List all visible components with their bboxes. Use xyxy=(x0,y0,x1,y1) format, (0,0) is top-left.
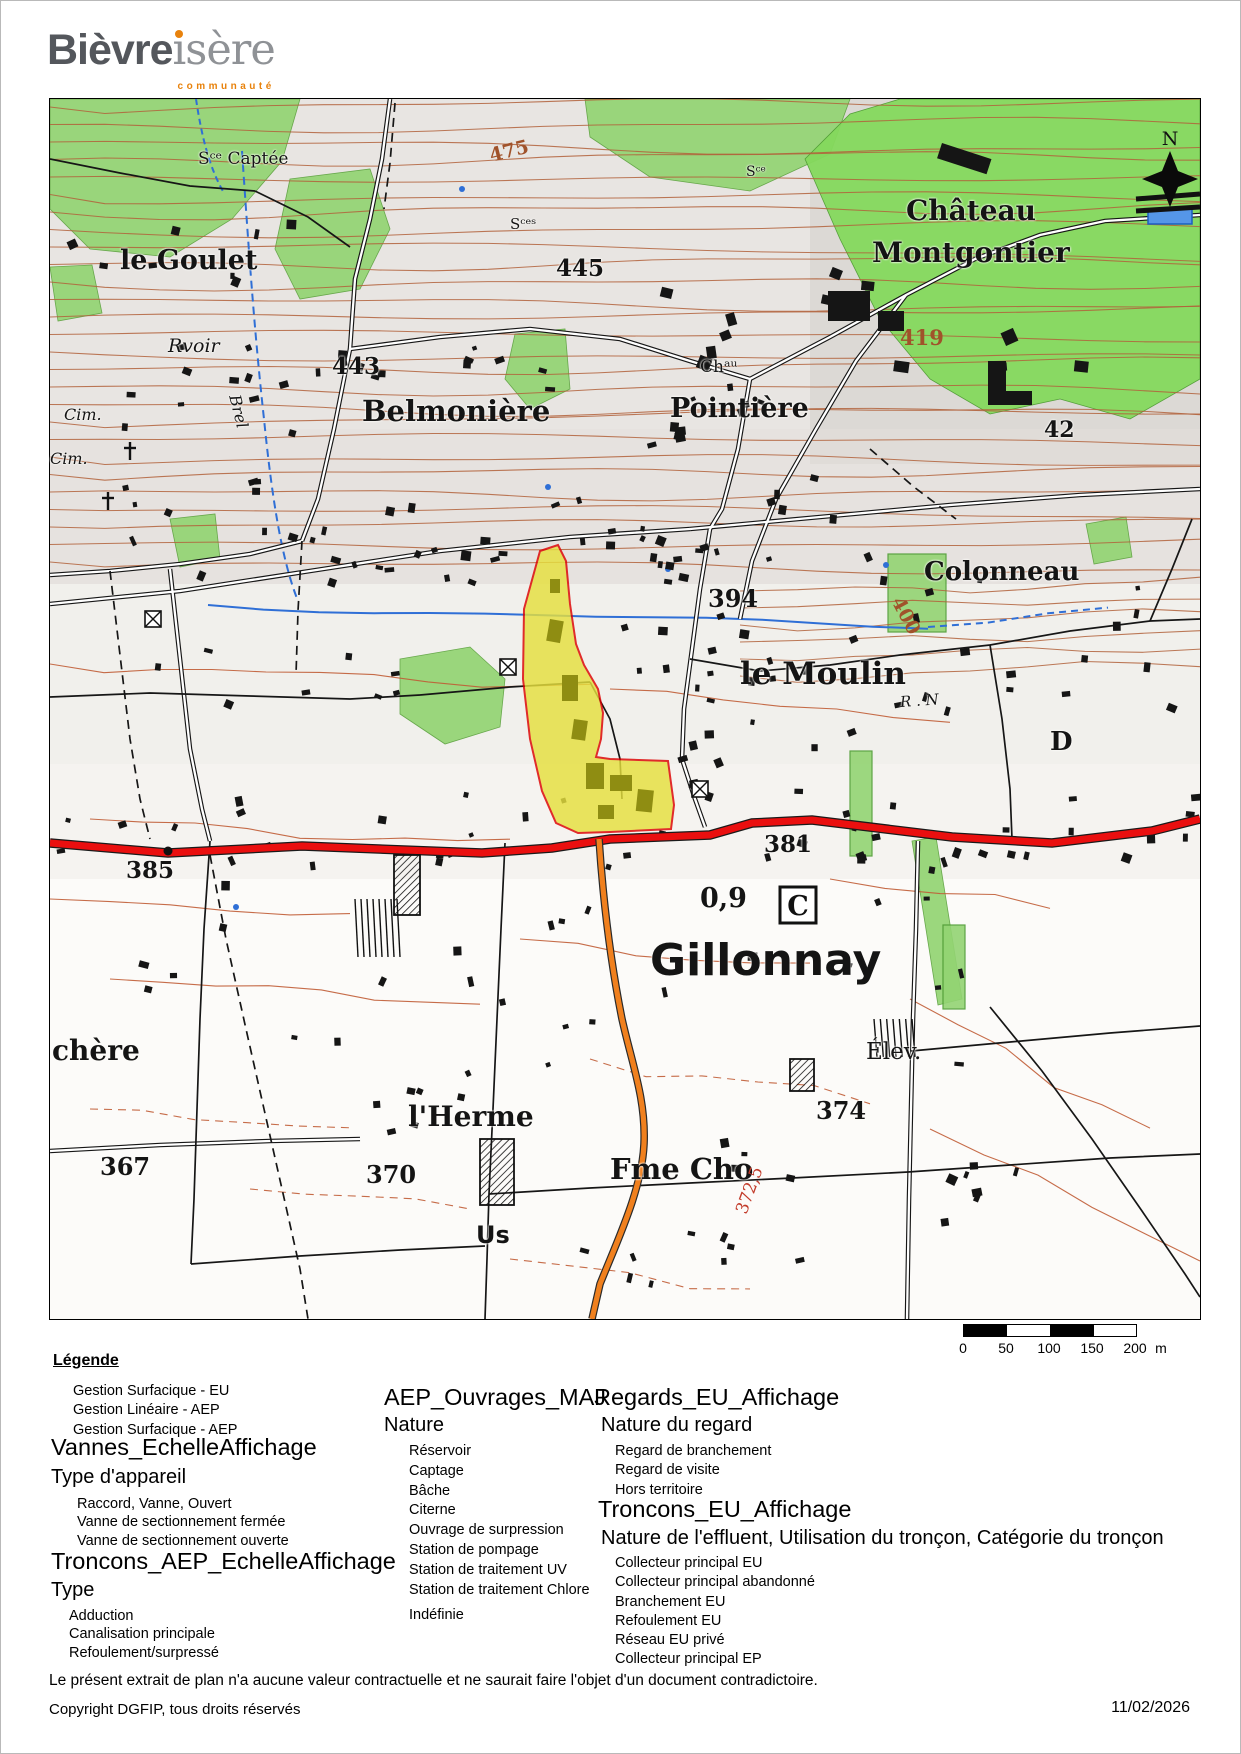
legend-ouvrages-items: RéservoirCaptageBâcheCiterneOuvrage de s… xyxy=(409,1442,590,1600)
legend-item: Gestion Linéaire - AEP xyxy=(73,1401,237,1420)
legend-surface-items: Gestion Surfacique - EUGestion Linéaire … xyxy=(73,1382,237,1440)
legend-item: Captage xyxy=(409,1462,590,1482)
map-canvas: C N xyxy=(50,99,1200,1319)
legend-troncons-aep-items: AdductionCanalisation principaleRefoulem… xyxy=(69,1607,219,1662)
copyright-text: Copyright DGFIP, tous droits réservés xyxy=(49,1701,300,1718)
logo-i-orange-dot-icon: ı xyxy=(172,25,185,75)
legend-item: Regard de branchement xyxy=(615,1442,771,1461)
legend-subheading-nature: Nature xyxy=(384,1414,444,1437)
legend-item: Collecteur principal EU xyxy=(615,1554,815,1573)
legend-item: Ouvrage de surpression xyxy=(409,1521,590,1541)
legend-item: Regard de visite xyxy=(615,1461,771,1480)
logo-tagline: communauté xyxy=(178,81,275,92)
legend-item: Collecteur principal abandonné xyxy=(615,1573,815,1592)
legend-item: Refoulement EU xyxy=(615,1612,815,1631)
legend-subheading-type-appareil: Type d'appareil xyxy=(51,1466,186,1489)
legend-item: Station de traitement UV xyxy=(409,1561,590,1581)
legend-title: Légende xyxy=(53,1352,119,1370)
legend-item: Gestion Surfacique - EU xyxy=(73,1382,237,1401)
legend-vannes-items: Raccord, Vanne, OuvertVanne de sectionne… xyxy=(77,1495,289,1550)
topographic-map: C N Sᶜᵉ Captée475le Goulet445ChâteauMont… xyxy=(49,98,1201,1320)
legend-heading-vannes: Vannes_EchelleAffichage xyxy=(51,1434,317,1461)
logo-text-isere: ısère xyxy=(172,25,274,75)
bievre-isere-logo: Bièvreısère communauté xyxy=(47,25,275,75)
legend-heading-aep-ouvrages: AEP_Ouvrages_MAJ xyxy=(384,1384,606,1411)
legend-item-indefinie: Indéfinie xyxy=(409,1607,464,1623)
svg-text:N: N xyxy=(1162,128,1179,150)
legend-subheading-nature-regard: Nature du regard xyxy=(601,1414,752,1437)
document-date: 11/02/2026 xyxy=(1111,1699,1190,1717)
scale-segment xyxy=(1051,1325,1094,1336)
legend-item: Réservoir xyxy=(409,1442,590,1462)
legend-item: Branchement EU xyxy=(615,1593,815,1612)
legend-item: Station de pompage xyxy=(409,1541,590,1561)
disclaimer-text: Le présent extrait de plan n'a aucune va… xyxy=(49,1672,818,1690)
legend-heading-troncons-eu: Troncons_EU_Affichage xyxy=(598,1496,851,1523)
scale-bar-segments xyxy=(963,1324,1137,1337)
boxed-c-symbol: C xyxy=(780,887,816,923)
logo-text-bievre: Bièvre xyxy=(47,26,172,74)
legend-troncons-eu-items: Collecteur principal EUCollecteur princi… xyxy=(615,1554,815,1670)
legend-item: Réseau EU privé xyxy=(615,1631,815,1650)
legend-heading-troncons-aep: Troncons_AEP_EchelleAffichage xyxy=(51,1548,396,1575)
legend-heading-regards-eu: Regards_EU_Affichage xyxy=(594,1384,839,1411)
scale-segment xyxy=(1094,1325,1136,1336)
legend-subheading-type: Type xyxy=(51,1579,94,1602)
document-page: Bièvreısère communauté C N Sᶜᵉ Captée475… xyxy=(0,0,1241,1754)
legend-item: Canalisation principale xyxy=(69,1625,219,1643)
legend-item: Vanne de sectionnement fermée xyxy=(77,1513,289,1531)
legend-item: Bâche xyxy=(409,1482,590,1502)
legend-item: Collecteur principal EP xyxy=(615,1650,815,1669)
legend-item: Raccord, Vanne, Ouvert xyxy=(77,1495,289,1513)
legend-item: Adduction xyxy=(69,1607,219,1625)
scale-segment xyxy=(964,1325,1007,1336)
legend-regards-items: Regard de branchementRegard de visiteHor… xyxy=(615,1442,771,1500)
legend: Légende Gestion Surfacique - EUGestion L… xyxy=(1,1346,1241,1676)
legend-subheading-nature-effluent: Nature de l'effluent, Utilisation du tro… xyxy=(601,1527,1164,1550)
legend-item: Citerne xyxy=(409,1501,590,1521)
svg-text:C: C xyxy=(787,891,809,922)
legend-item: Station de traitement Chlore xyxy=(409,1581,590,1601)
scale-segment xyxy=(1007,1325,1050,1336)
legend-item: Refoulement/surpressé xyxy=(69,1644,219,1662)
